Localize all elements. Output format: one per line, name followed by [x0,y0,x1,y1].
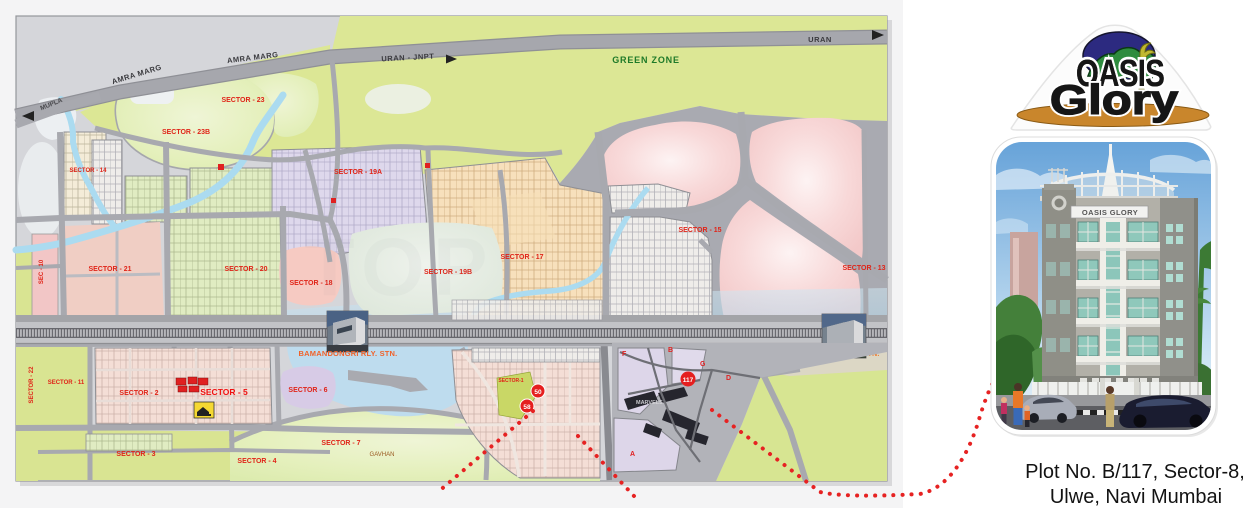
svg-text:SECTOR - 22: SECTOR - 22 [29,366,35,404]
svg-text:BAMANDONGRI RLY. STN.: BAMANDONGRI RLY. STN. [299,349,398,358]
svg-text:F: F [622,351,627,358]
svg-text:SECTOR - 6: SECTOR - 6 [288,387,327,394]
svg-text:SECTOR - 14: SECTOR - 14 [70,168,108,174]
svg-text:58: 58 [523,404,531,411]
svg-text:SECTOR - 11: SECTOR - 11 [48,380,85,386]
svg-text:SECTOR - 21: SECTOR - 21 [88,266,131,273]
svg-text:SECTOR-1: SECTOR-1 [498,378,523,384]
svg-text:A: A [630,451,635,458]
svg-text:GREEN ZONE: GREEN ZONE [612,55,680,65]
svg-text:SECTOR - 13: SECTOR - 13 [842,265,885,272]
svg-text:50: 50 [534,389,542,396]
svg-text:SECTOR - 2: SECTOR - 2 [119,390,158,397]
svg-text:SECTOR - 15: SECTOR - 15 [678,227,721,234]
svg-text:URAN: URAN [808,35,832,44]
svg-text:SEC - 10: SEC - 10 [39,259,45,284]
svg-text:SECTOR - 3: SECTOR - 3 [116,451,155,458]
svg-text:SECTOR - 20: SECTOR - 20 [224,266,267,273]
svg-text:SECTOR - 17: SECTOR - 17 [500,254,543,261]
svg-text:OASIS GLORY: OASIS GLORY [1082,208,1138,217]
svg-text:Glory: Glory [1050,76,1179,123]
svg-text:SECTOR - 7: SECTOR - 7 [321,440,360,447]
svg-text:SECTOR - 4: SECTOR - 4 [237,458,276,465]
svg-text:SECTOR - 23: SECTOR - 23 [221,97,264,104]
svg-text:D: D [726,375,731,382]
svg-text:Ulwe, Navi Mumbai: Ulwe, Navi Mumbai [1050,486,1222,508]
svg-text:SECTOR - 5: SECTOR - 5 [200,387,248,397]
svg-text:SECTOR - 23B: SECTOR - 23B [162,129,210,136]
svg-text:MARVELS: MARVELS [636,400,663,406]
svg-text:TOP: TOP [304,222,495,313]
svg-text:GAVHAN: GAVHAN [370,452,395,458]
svg-text:Plot No. B/117, Sector-8,: Plot No. B/117, Sector-8, [1025,461,1245,483]
svg-text:117: 117 [683,377,694,384]
svg-text:B: B [668,347,673,354]
svg-text:G: G [700,361,706,368]
svg-text:SECTOR - 19A: SECTOR - 19A [334,169,382,176]
